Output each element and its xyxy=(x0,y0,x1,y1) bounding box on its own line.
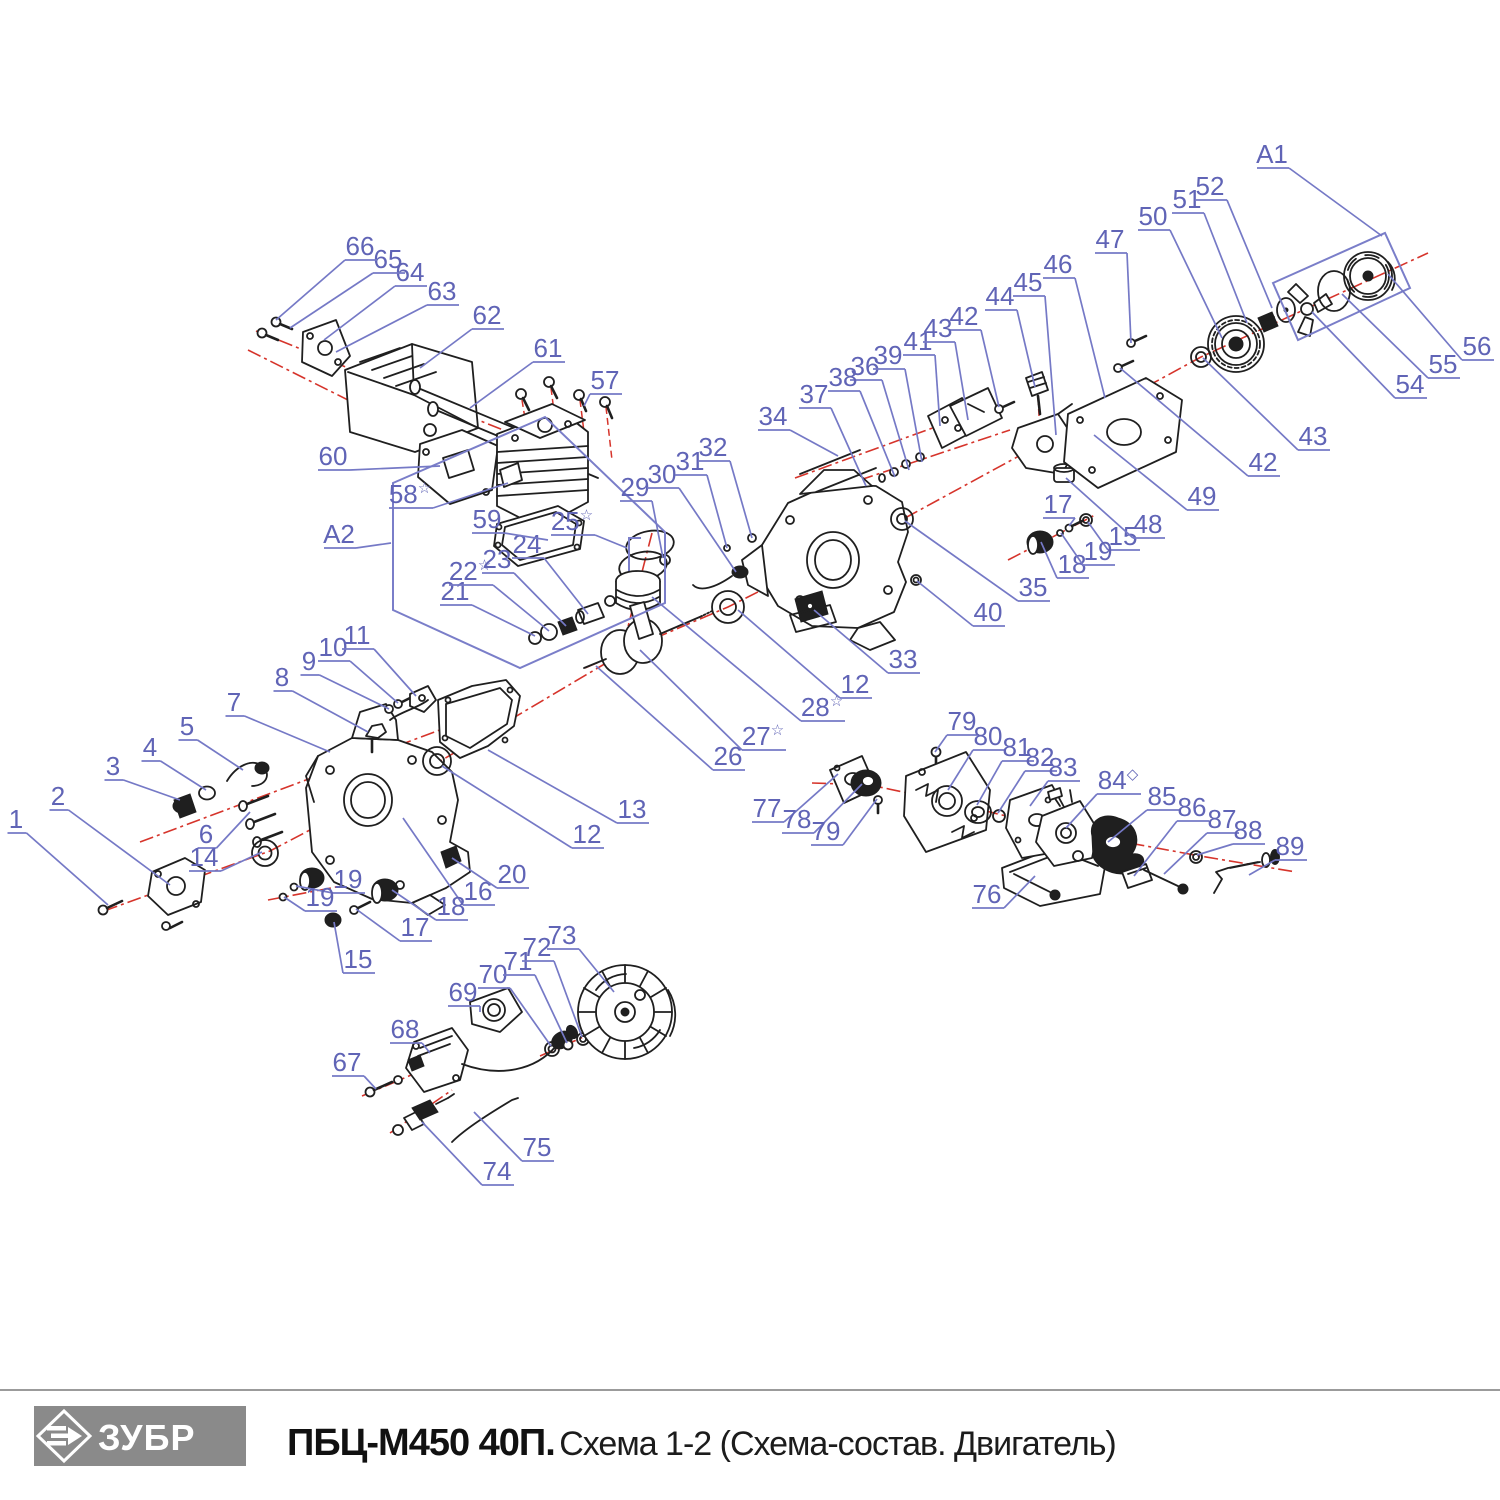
part-callout-A2: A2 xyxy=(323,519,391,549)
part-callout-32: 32 xyxy=(698,432,752,538)
part-callout-51: 51 xyxy=(1172,184,1247,323)
svg-text:67: 67 xyxy=(333,1047,362,1077)
clutch-drum xyxy=(1208,316,1264,372)
doc-title-model: ПБЦ-М450 40П. xyxy=(287,1422,555,1464)
svg-text:23: 23 xyxy=(483,544,512,574)
svg-text:52: 52 xyxy=(1196,171,1225,201)
svg-text:2: 2 xyxy=(51,781,65,811)
part-callout-15: 15 xyxy=(334,922,375,974)
svg-text:A2: A2 xyxy=(323,519,355,549)
svg-text:35: 35 xyxy=(1019,572,1048,602)
exploded-diagram: 1234567891011121213141515161717181819191… xyxy=(0,0,1500,1385)
svg-text:28☆: 28☆ xyxy=(801,692,843,722)
svg-text:79: 79 xyxy=(812,816,841,846)
part-callout-26: 26 xyxy=(596,666,745,771)
svg-text:37: 37 xyxy=(800,379,829,409)
svg-text:69: 69 xyxy=(449,977,478,1007)
svg-text:32: 32 xyxy=(699,432,728,462)
part-callout-27: 27☆ xyxy=(640,650,786,751)
logo-arrow-icon xyxy=(47,1426,82,1446)
choke-ring xyxy=(1190,851,1202,863)
zubr-logo: ЗУБР xyxy=(34,1406,246,1466)
crankcase-right xyxy=(742,470,908,650)
svg-text:4: 4 xyxy=(143,732,157,762)
part-callout-63: 63 xyxy=(336,276,459,352)
svg-text:24: 24 xyxy=(513,529,542,559)
svg-text:1: 1 xyxy=(9,804,23,834)
svg-text:88: 88 xyxy=(1234,815,1263,845)
svg-text:85: 85 xyxy=(1148,781,1177,811)
svg-text:3: 3 xyxy=(106,751,120,781)
coil-screw xyxy=(366,1076,403,1097)
muffler-screws xyxy=(258,318,293,341)
centerlines xyxy=(104,253,1428,1133)
svg-text:19: 19 xyxy=(334,864,363,894)
svg-text:19: 19 xyxy=(1084,536,1113,566)
svg-text:48: 48 xyxy=(1134,509,1163,539)
svg-text:15: 15 xyxy=(344,944,373,974)
svg-text:42: 42 xyxy=(1249,447,1278,477)
callouts: 1234567891011121213141515161717181819191… xyxy=(8,139,1495,1186)
svg-text:60: 60 xyxy=(319,441,348,471)
flywheel xyxy=(578,965,675,1059)
spark-plug xyxy=(393,1094,454,1135)
crankshaft xyxy=(584,602,712,674)
guide-plates xyxy=(928,388,1014,448)
svg-text:63: 63 xyxy=(428,276,457,306)
svg-text:17: 17 xyxy=(401,912,430,942)
page: 1234567891011121213141515161717181819191… xyxy=(0,0,1500,1500)
svg-text:12: 12 xyxy=(841,669,870,699)
part-callout-62: 62 xyxy=(420,300,504,368)
svg-text:20: 20 xyxy=(498,859,527,889)
svg-text:13: 13 xyxy=(618,794,647,824)
svg-text:75: 75 xyxy=(523,1132,552,1162)
svg-text:87: 87 xyxy=(1208,804,1237,834)
svg-text:83: 83 xyxy=(1049,752,1078,782)
part-callout-46: 46 xyxy=(1043,249,1105,398)
svg-text:84◇: 84◇ xyxy=(1098,765,1139,795)
svg-text:45: 45 xyxy=(1014,267,1043,297)
svg-text:18: 18 xyxy=(437,891,466,921)
part-callout-8: 8 xyxy=(274,662,369,732)
intake-manifold xyxy=(851,770,881,796)
svg-text:38: 38 xyxy=(829,362,858,392)
part-callout-74: 74 xyxy=(422,1122,514,1186)
svg-text:16: 16 xyxy=(464,876,493,906)
oil-pickup-hose xyxy=(227,762,269,786)
part-callout-50: 50 xyxy=(1138,201,1222,338)
kill-wire xyxy=(452,1098,518,1142)
part-callout-7: 7 xyxy=(226,687,331,752)
svg-text:5: 5 xyxy=(180,711,194,741)
part-callout-17: 17 xyxy=(356,909,432,942)
part-callout-56: 56 xyxy=(1388,274,1494,361)
part-callout-79: 79 xyxy=(935,706,979,752)
svg-text:9: 9 xyxy=(302,646,316,676)
svg-text:54: 54 xyxy=(1396,369,1425,399)
airbox-base xyxy=(904,752,990,852)
svg-text:44: 44 xyxy=(986,281,1015,311)
part-callout-67: 67 xyxy=(332,1047,376,1089)
svg-text:27☆: 27☆ xyxy=(742,721,784,751)
footer-divider xyxy=(0,1389,1500,1391)
part-callout-75: 75 xyxy=(474,1112,554,1162)
svg-text:34: 34 xyxy=(759,401,788,431)
svg-text:61: 61 xyxy=(534,333,563,363)
piston xyxy=(605,555,670,610)
intake-boot xyxy=(1091,816,1143,874)
part-callout-A1: A1 xyxy=(1256,139,1382,236)
doc-title-subtitle: Схема 1-2 (Схема-состав. Двигатель) xyxy=(559,1425,1116,1463)
svg-text:55: 55 xyxy=(1429,349,1458,379)
svg-text:14: 14 xyxy=(190,842,219,872)
svg-text:43: 43 xyxy=(924,313,953,343)
svg-text:77: 77 xyxy=(753,793,782,823)
svg-text:7: 7 xyxy=(227,687,241,717)
svg-text:29: 29 xyxy=(621,472,650,502)
svg-text:68: 68 xyxy=(391,1014,420,1044)
part-callout-47: 47 xyxy=(1095,224,1131,343)
part-callout-45: 45 xyxy=(1013,267,1056,435)
svg-text:47: 47 xyxy=(1096,224,1125,254)
part-callout-69: 69 xyxy=(448,977,480,1012)
case-bolts xyxy=(239,796,282,847)
part-callout-43: 43 xyxy=(1203,358,1330,451)
zubr-logo-art: ЗУБР xyxy=(34,1406,246,1466)
svg-text:12: 12 xyxy=(573,819,602,849)
side-plate xyxy=(1064,336,1182,488)
svg-text:17: 17 xyxy=(1044,489,1073,519)
svg-text:30: 30 xyxy=(648,459,677,489)
svg-text:66: 66 xyxy=(346,231,375,261)
svg-text:8: 8 xyxy=(275,662,289,692)
part-callout-34: 34 xyxy=(758,401,838,456)
svg-text:73: 73 xyxy=(548,920,577,950)
svg-text:49: 49 xyxy=(1188,481,1217,511)
part-callout-1: 1 xyxy=(8,804,109,905)
part-callout-13: 13 xyxy=(488,750,649,824)
svg-text:46: 46 xyxy=(1044,249,1073,279)
svg-text:76: 76 xyxy=(973,879,1002,909)
svg-text:56: 56 xyxy=(1463,331,1492,361)
svg-text:33: 33 xyxy=(889,644,918,674)
ht-wire xyxy=(462,1023,580,1070)
svg-text:74: 74 xyxy=(483,1156,512,1186)
part-callout-17: 17 xyxy=(1043,489,1075,526)
part-callout-5: 5 xyxy=(179,711,244,770)
svg-text:19: 19 xyxy=(306,882,335,912)
choke-rod xyxy=(1214,850,1280,894)
svg-text:59: 59 xyxy=(473,504,502,534)
svg-text:62: 62 xyxy=(473,300,502,330)
part-callout-79: 79 xyxy=(811,799,877,846)
svg-text:11: 11 xyxy=(344,620,371,650)
svg-text:65: 65 xyxy=(374,244,403,274)
svg-text:79: 79 xyxy=(948,706,977,736)
part-callout-66: 66 xyxy=(276,231,377,320)
svg-text:25☆: 25☆ xyxy=(551,506,593,536)
svg-text:43: 43 xyxy=(1299,421,1328,451)
bearing-small xyxy=(252,840,278,866)
logo-text: ЗУБР xyxy=(98,1417,195,1458)
svg-text:86: 86 xyxy=(1178,792,1207,822)
doc-title: ПБЦ-М450 40П. Схема 1-2 (Схема-состав. Д… xyxy=(287,1422,1467,1465)
part-callout-39: 39 xyxy=(873,340,922,462)
buffers-right xyxy=(1027,514,1092,554)
svg-text:50: 50 xyxy=(1139,201,1168,231)
svg-text:78: 78 xyxy=(783,804,812,834)
part-callout-11: 11 xyxy=(342,620,416,696)
part-callout-12: 12 xyxy=(442,766,604,849)
svg-text:57: 57 xyxy=(591,365,620,395)
svg-text:39: 39 xyxy=(874,340,903,370)
crankcase-gasket xyxy=(438,680,520,758)
svg-text:58☆: 58☆ xyxy=(389,479,431,509)
svg-text:89: 89 xyxy=(1276,831,1305,861)
svg-text:A1: A1 xyxy=(1256,139,1288,169)
svg-text:40: 40 xyxy=(974,597,1003,627)
clutch-assembly xyxy=(1344,252,1395,300)
svg-text:42: 42 xyxy=(950,301,979,331)
oil-pump-worm-left xyxy=(173,787,215,819)
part-callout-40: 40 xyxy=(917,581,1005,627)
svg-text:80: 80 xyxy=(974,721,1003,751)
plate-screw xyxy=(99,901,123,915)
